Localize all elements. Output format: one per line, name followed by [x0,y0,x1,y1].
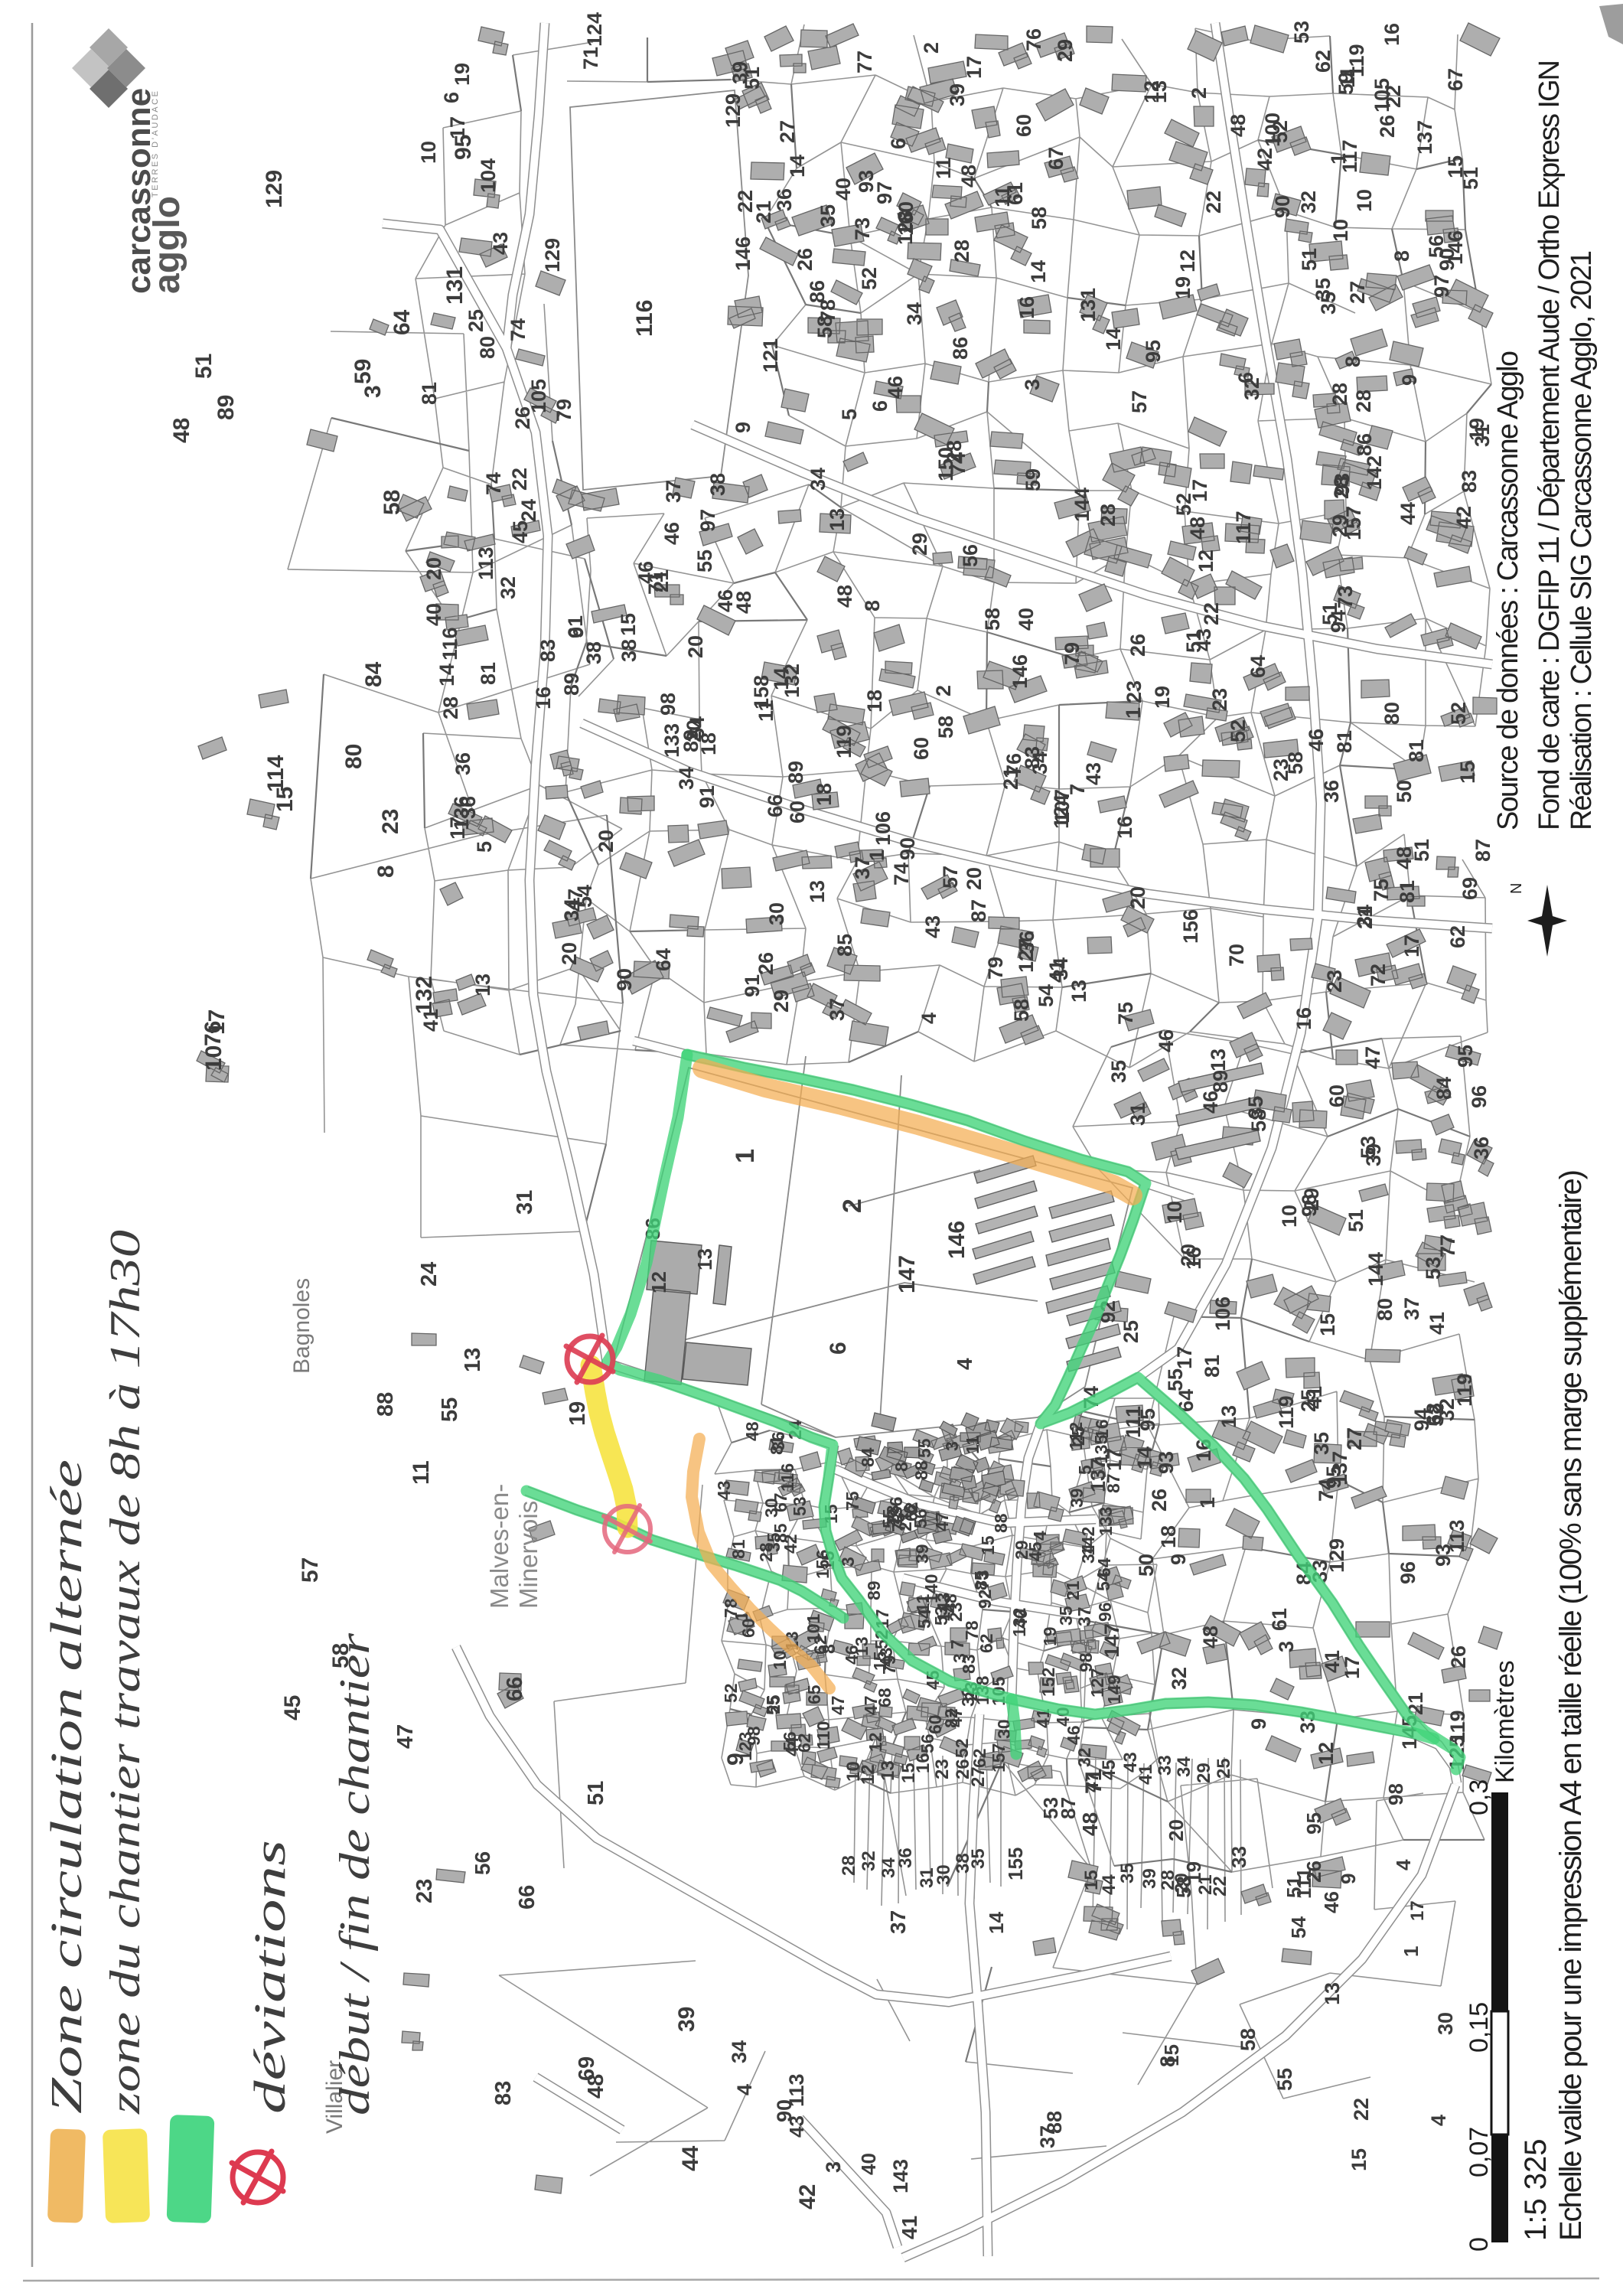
svg-text:13: 13 [461,1348,485,1372]
svg-text:86: 86 [949,337,972,360]
svg-text:32: 32 [1074,1747,1094,1767]
svg-text:47: 47 [1361,1046,1384,1069]
svg-text:23: 23 [412,1879,437,1903]
svg-text:12: 12 [858,1764,878,1785]
svg-text:22: 22 [1210,1876,1230,1896]
svg-text:20: 20 [422,557,445,580]
svg-text:4: 4 [1392,1859,1415,1870]
svg-text:132: 132 [412,976,437,1014]
svg-text:54: 54 [1287,1916,1310,1939]
svg-text:0,3: 0,3 [1465,1779,1494,1815]
svg-text:39: 39 [674,2007,699,2032]
svg-text:66: 66 [764,794,787,817]
svg-text:62: 62 [794,1733,814,1753]
svg-text:3: 3 [822,2161,845,2173]
svg-text:147: 147 [895,1255,920,1293]
svg-text:Malves-en-: Malves-en- [485,1484,513,1609]
svg-text:106: 106 [1211,1296,1234,1331]
svg-text:52: 52 [858,267,881,290]
svg-text:16: 16 [1292,1007,1315,1030]
svg-text:26: 26 [754,952,777,975]
svg-text:150: 150 [934,447,957,481]
svg-text:46: 46 [1305,729,1328,752]
svg-text:6: 6 [887,138,910,149]
svg-text:51: 51 [1344,1209,1367,1232]
svg-text:39: 39 [1067,1488,1087,1508]
svg-text:13: 13 [1067,980,1090,1003]
svg-text:8: 8 [891,1462,911,1472]
svg-text:64: 64 [1094,1557,1114,1577]
svg-text:12: 12 [1194,550,1217,572]
svg-text:132: 132 [781,664,803,698]
svg-text:84: 84 [1432,1077,1455,1100]
svg-text:69: 69 [1458,877,1481,900]
svg-text:20: 20 [595,830,618,853]
svg-text:22: 22 [508,468,531,491]
svg-text:127: 127 [1087,1668,1107,1698]
svg-text:27: 27 [1346,281,1369,304]
svg-text:55: 55 [1273,2068,1296,2091]
svg-text:84: 84 [858,1447,878,1467]
svg-text:60: 60 [786,801,809,823]
svg-text:146: 146 [732,236,754,271]
svg-text:60: 60 [1325,1084,1348,1107]
svg-text:Minervois: Minervois [514,1501,543,1609]
svg-text:95: 95 [1302,1812,1325,1835]
svg-text:17: 17 [1173,1346,1196,1369]
svg-text:22: 22 [1200,602,1223,625]
svg-text:10: 10 [1353,189,1376,212]
svg-text:58: 58 [1247,1109,1270,1132]
svg-text:Source de données : Carcassonn: Source de données : Carcassonne Agglo [1492,351,1524,830]
svg-text:10: 10 [417,141,440,164]
svg-text:8: 8 [861,600,884,612]
svg-text:48: 48 [957,165,980,188]
svg-text:28: 28 [1328,383,1351,406]
svg-text:51: 51 [741,67,764,90]
svg-text:74: 74 [507,318,530,341]
svg-text:3: 3 [1275,1641,1298,1652]
svg-text:32: 32 [1168,1667,1191,1690]
svg-text:10: 10 [1329,219,1352,242]
svg-text:0,15: 0,15 [1465,2002,1494,2053]
svg-text:32: 32 [497,576,520,599]
svg-text:55: 55 [438,1397,462,1422]
svg-text:29: 29 [1054,39,1077,62]
svg-text:12: 12 [1140,80,1163,103]
svg-text:83: 83 [959,1654,979,1674]
svg-text:27: 27 [1343,1427,1366,1450]
svg-text:34: 34 [728,2040,751,2063]
svg-text:66: 66 [515,1885,539,1910]
svg-text:1: 1 [1196,1497,1219,1508]
svg-text:85: 85 [971,1570,991,1590]
svg-text:28: 28 [439,696,462,719]
svg-text:93: 93 [855,170,878,193]
svg-text:37: 37 [662,480,685,503]
svg-text:50: 50 [1393,780,1416,803]
svg-text:8: 8 [1390,250,1413,262]
svg-text:14: 14 [1102,328,1125,351]
svg-text:14: 14 [1027,260,1050,283]
svg-text:67: 67 [1045,147,1067,170]
svg-text:85: 85 [833,934,856,957]
svg-text:81: 81 [477,662,500,685]
svg-text:21: 21 [1063,1580,1083,1600]
svg-text:43: 43 [1192,628,1215,651]
svg-text:9: 9 [1398,374,1421,386]
svg-text:11: 11 [754,700,777,722]
svg-text:60: 60 [910,737,933,760]
svg-text:25: 25 [1068,1426,1088,1446]
svg-text:53: 53 [1422,1257,1445,1280]
svg-text:32: 32 [1240,377,1263,400]
svg-text:40: 40 [422,603,445,626]
svg-text:agglo: agglo [147,196,187,294]
svg-text:38: 38 [706,473,729,496]
svg-text:34: 34 [675,767,698,790]
svg-text:22: 22 [1350,2098,1373,2121]
svg-text:48: 48 [742,1421,762,1441]
svg-text:46: 46 [1320,1891,1343,1913]
svg-text:4: 4 [733,2084,756,2095]
svg-text:38: 38 [582,641,605,664]
svg-text:73: 73 [888,1512,908,1532]
svg-text:18: 18 [863,690,886,713]
svg-text:6: 6 [869,400,891,412]
svg-text:17: 17 [1407,1900,1428,1921]
svg-text:43: 43 [785,2115,808,2138]
svg-text:20: 20 [558,942,581,965]
svg-text:128: 128 [894,210,917,245]
svg-text:47: 47 [932,1512,952,1531]
svg-text:25: 25 [1214,1758,1234,1779]
svg-text:17: 17 [1341,1656,1364,1679]
svg-text:52: 52 [1227,719,1250,742]
svg-text:15: 15 [978,1535,998,1555]
svg-text:30: 30 [765,902,788,925]
svg-text:157: 157 [989,1743,1009,1773]
svg-text:30: 30 [1434,2012,1457,2035]
svg-text:36: 36 [895,1848,916,1868]
svg-text:133: 133 [1096,1507,1116,1536]
svg-text:74: 74 [890,863,913,885]
svg-text:10: 10 [201,1045,227,1071]
svg-text:14: 14 [1133,1446,1156,1469]
svg-text:35: 35 [968,1848,989,1869]
svg-text:23: 23 [1123,680,1146,703]
svg-text:96: 96 [1468,1085,1491,1108]
svg-text:44: 44 [1396,502,1419,525]
svg-text:67: 67 [1444,68,1467,91]
svg-text:58: 58 [1028,207,1051,230]
svg-text:39: 39 [1139,1868,1160,1889]
svg-text:58: 58 [1237,2028,1260,2051]
svg-text:83: 83 [1021,746,1044,769]
svg-text:79: 79 [984,957,1007,980]
svg-text:29: 29 [770,990,793,1013]
svg-text:1: 1 [1400,1946,1423,1957]
svg-text:16: 16 [1015,296,1038,319]
svg-text:8: 8 [1341,356,1364,367]
svg-text:16: 16 [913,1753,934,1773]
svg-text:81: 81 [418,382,441,405]
svg-text:9: 9 [723,1753,748,1766]
svg-text:46: 46 [1155,1029,1178,1052]
svg-text:2: 2 [1188,87,1211,99]
svg-text:46: 46 [1199,1091,1222,1114]
svg-text:129: 129 [262,170,287,208]
svg-text:8: 8 [819,1644,839,1654]
svg-text:119: 119 [1275,1395,1298,1429]
svg-text:31: 31 [1471,424,1494,447]
svg-text:11: 11 [1336,66,1359,88]
svg-text:61: 61 [564,615,587,638]
svg-text:75: 75 [842,1491,862,1511]
svg-text:53: 53 [790,1496,810,1516]
svg-text:41: 41 [419,1009,442,1032]
svg-text:111: 111 [1122,1406,1145,1438]
svg-text:81: 81 [1201,1355,1224,1378]
svg-text:37: 37 [886,1910,910,1934]
svg-text:116: 116 [632,300,657,337]
svg-text:104: 104 [477,158,500,193]
svg-text:51: 51 [191,354,217,379]
svg-text:90: 90 [613,968,636,991]
svg-text:40: 40 [857,2153,880,2175]
svg-text:58: 58 [380,490,405,515]
svg-text:47: 47 [564,889,587,912]
svg-text:43: 43 [921,915,944,938]
svg-text:15: 15 [617,613,640,636]
svg-text:79: 79 [552,399,575,422]
svg-text:21: 21 [1354,906,1377,929]
svg-text:105: 105 [1370,78,1393,113]
svg-text:119: 119 [1453,1373,1476,1407]
svg-text:42: 42 [1452,506,1475,529]
svg-text:96: 96 [1396,1561,1419,1584]
svg-text:95: 95 [1454,1045,1477,1068]
svg-text:11: 11 [913,1593,933,1613]
svg-text:37: 37 [1074,1606,1094,1626]
svg-text:146: 146 [1444,230,1467,265]
svg-text:20: 20 [1172,1873,1192,1893]
svg-text:106: 106 [872,811,895,846]
svg-text:15: 15 [1348,2148,1370,2171]
svg-text:75: 75 [1370,879,1393,902]
svg-text:55: 55 [914,1438,934,1458]
svg-text:16: 16 [1380,23,1403,46]
svg-text:89: 89 [560,673,583,696]
svg-text:12: 12 [647,1271,670,1293]
svg-text:39: 39 [946,83,969,106]
svg-text:30: 30 [934,1864,954,1885]
svg-text:116: 116 [438,627,461,660]
svg-text:117: 117 [1338,139,1361,173]
svg-text:80: 80 [476,336,499,359]
svg-text:19: 19 [1040,1626,1060,1646]
svg-text:16: 16 [1113,816,1136,839]
svg-text:2: 2 [920,42,943,54]
svg-text:Bagnoles: Bagnoles [289,1278,314,1374]
svg-text:42: 42 [795,2184,820,2210]
svg-text:53: 53 [1357,1136,1380,1159]
svg-text:26: 26 [794,248,816,271]
svg-text:51: 51 [584,1781,608,1805]
svg-text:56: 56 [959,544,982,567]
svg-text:107: 107 [1051,789,1074,823]
svg-text:20: 20 [683,719,706,742]
svg-text:5: 5 [473,841,496,853]
svg-text:23: 23 [1323,970,1346,993]
svg-text:29: 29 [908,533,931,556]
svg-text:Zone circulation alternée: Zone circulation alternée [41,1459,91,2114]
svg-text:26: 26 [1376,115,1399,138]
svg-text:13: 13 [471,974,494,996]
svg-text:35: 35 [1317,292,1340,315]
svg-text:23: 23 [932,1759,953,1779]
svg-text:88: 88 [991,1513,1011,1533]
svg-text:88: 88 [373,1392,398,1417]
svg-text:19: 19 [1151,686,1174,709]
svg-text:89: 89 [1209,1070,1232,1093]
svg-text:Fond de carte : DGFIP 11 / Dép: Fond de carte : DGFIP 11 / Département A… [1533,60,1566,830]
svg-text:96: 96 [1095,1602,1115,1622]
svg-text:24: 24 [417,1262,442,1287]
svg-text:35: 35 [1107,1060,1130,1083]
svg-text:46: 46 [884,376,907,399]
svg-text:46: 46 [660,522,683,545]
svg-text:87: 87 [1103,1473,1123,1493]
svg-text:93: 93 [1155,1451,1178,1474]
svg-text:15: 15 [1160,2044,1183,2066]
svg-text:129: 129 [541,238,564,272]
svg-text:70: 70 [1225,944,1248,967]
svg-text:40: 40 [1011,1609,1031,1629]
svg-text:144: 144 [1364,1252,1387,1287]
svg-text:36: 36 [451,752,474,775]
svg-text:98: 98 [1384,1783,1407,1805]
svg-text:15: 15 [1456,761,1479,784]
svg-text:11: 11 [963,1435,983,1454]
svg-text:60: 60 [925,1714,945,1734]
svg-text:92: 92 [975,1589,995,1609]
svg-text:81: 81 [1396,880,1419,903]
svg-text:81: 81 [728,1539,748,1559]
svg-text:72: 72 [1367,964,1390,987]
svg-text:57: 57 [1128,390,1151,413]
svg-text:22: 22 [734,190,757,213]
svg-text:20: 20 [963,867,986,890]
svg-text:Réalisation : Cellule SIG Carc: Réalisation : Cellule SIG Carcassonne Ag… [1566,250,1598,830]
svg-text:TERRES D’AUDACE: TERRES D’AUDACE [151,90,160,197]
svg-text:84: 84 [361,661,386,687]
svg-text:Kilomètres: Kilomètres [1491,1660,1520,1783]
svg-text:41: 41 [1303,1386,1326,1409]
svg-text:64: 64 [652,948,675,971]
svg-text:1: 1 [1122,707,1145,719]
svg-text:11: 11 [409,1460,434,1485]
svg-text:44: 44 [678,2145,703,2171]
svg-text:34: 34 [1174,1756,1194,1777]
svg-text:27: 27 [776,120,799,143]
svg-text:4: 4 [1030,1531,1050,1541]
svg-text:57: 57 [298,1557,323,1583]
svg-text:77: 77 [853,51,876,73]
svg-text:23: 23 [1269,758,1292,781]
svg-text:43: 43 [1082,762,1105,785]
svg-text:131: 131 [442,266,468,305]
svg-text:9: 9 [1167,1554,1190,1565]
svg-text:54: 54 [1035,984,1058,1007]
svg-text:14: 14 [985,1912,1008,1934]
svg-text:5: 5 [838,409,861,420]
svg-text:97: 97 [696,509,719,532]
svg-text:121: 121 [759,338,782,373]
svg-text:56: 56 [471,1851,494,1875]
svg-text:74: 74 [482,472,505,495]
svg-text:34: 34 [903,302,926,325]
svg-text:12: 12 [1315,1742,1338,1765]
svg-text:61: 61 [1268,1608,1291,1631]
svg-text:52: 52 [721,1683,741,1703]
svg-text:0,07: 0,07 [1465,2127,1494,2177]
svg-text:35: 35 [1117,1863,1138,1883]
svg-text:46: 46 [634,561,657,584]
svg-text:17: 17 [1400,934,1423,957]
svg-text:53: 53 [1039,1797,1062,1819]
svg-text:N: N [1508,883,1525,894]
svg-text:48: 48 [584,2074,608,2099]
svg-text:26: 26 [1148,1489,1171,1512]
svg-text:90: 90 [896,837,919,860]
svg-text:29: 29 [1194,1763,1214,1783]
svg-text:28: 28 [950,240,973,263]
svg-text:142: 142 [1363,455,1386,490]
svg-text:15: 15 [1316,1313,1339,1336]
svg-text:18: 18 [1157,1525,1180,1548]
svg-text:89: 89 [864,1580,884,1600]
svg-text:53: 53 [1290,21,1313,44]
svg-text:2: 2 [932,685,955,696]
svg-text:73: 73 [851,217,874,240]
svg-text:91: 91 [741,974,764,997]
svg-text:37: 37 [1036,2125,1059,2148]
svg-text:7: 7 [947,1639,967,1649]
svg-text:80: 80 [1380,702,1403,725]
svg-text:29: 29 [1012,1540,1031,1560]
svg-text:20: 20 [1126,886,1149,909]
svg-text:42: 42 [1253,148,1276,171]
svg-text:5: 5 [1075,1465,1095,1475]
svg-text:6: 6 [900,1504,920,1514]
svg-text:12: 12 [865,1732,885,1752]
svg-text:10: 10 [770,1650,790,1670]
svg-text:136: 136 [450,796,473,830]
svg-text:26: 26 [1447,1645,1470,1668]
svg-text:157: 157 [1342,506,1365,540]
svg-text:13: 13 [1207,1049,1230,1071]
svg-text:64: 64 [1247,655,1269,678]
svg-text:23: 23 [378,809,403,834]
svg-text:43: 43 [489,232,512,255]
svg-text:40: 40 [1015,608,1038,631]
svg-text:146: 146 [944,1221,970,1259]
svg-text:28: 28 [756,1542,776,1562]
svg-text:32: 32 [1297,191,1320,214]
svg-text:25: 25 [764,1694,784,1714]
svg-text:81: 81 [767,1435,787,1455]
